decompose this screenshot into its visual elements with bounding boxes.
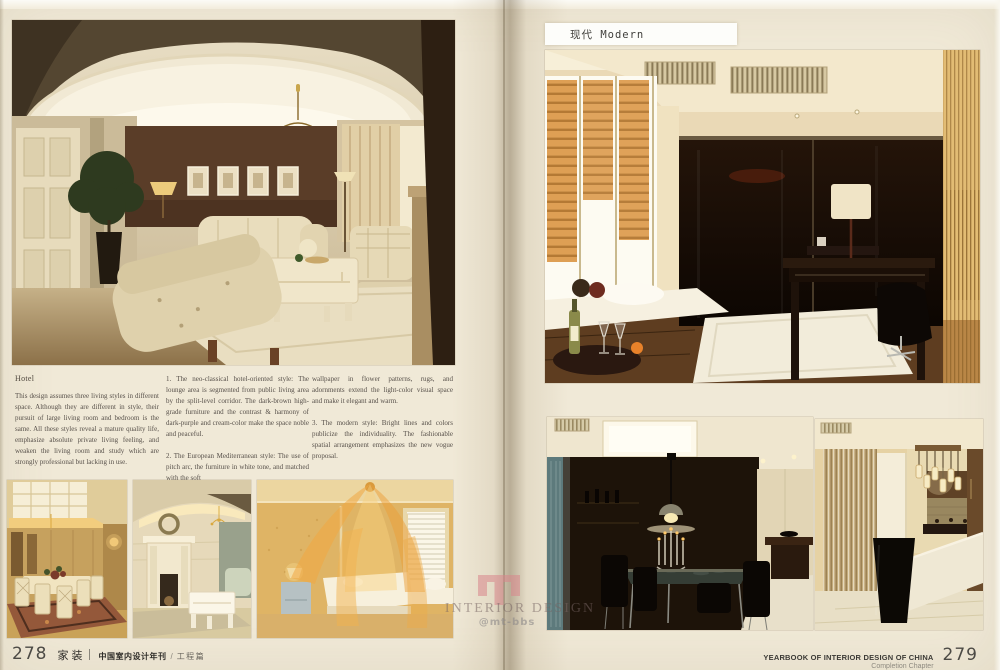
- kitchen-photo: [815, 419, 983, 630]
- section-label-text: 现代 Modern: [570, 27, 644, 42]
- article-heading: Hotel: [15, 374, 159, 383]
- right-page-number: 279: [943, 645, 978, 665]
- fireplace-room-photo: [133, 480, 251, 638]
- article-intro: This design assumes three living styles …: [15, 391, 159, 468]
- page-left-edge: [0, 0, 4, 670]
- footer-brand: 家装: [57, 647, 85, 663]
- article-style3: 3. The modern style: Bright lines and co…: [312, 418, 453, 462]
- dark-dining-photo: [547, 417, 813, 630]
- article-column-1: Hotel This design assumes three living s…: [15, 374, 159, 468]
- section-label: 现代 Modern: [545, 23, 737, 45]
- article-style1: 1. The neo-classical hotel-oriented styl…: [166, 374, 309, 440]
- footer-journal-title: 中国室内设计年刊: [98, 651, 166, 662]
- yearbook-subtitle: Completion Chapter: [763, 663, 933, 670]
- article-column-2: 1. The neo-classical hotel-oriented styl…: [166, 374, 309, 484]
- gutter-crease: [503, 0, 505, 670]
- yearbook-title-block: YEARBOOK OF INTERIOR DESIGN OF CHINA Com…: [763, 653, 933, 670]
- watermark-handle: @mt-bbs: [427, 617, 587, 628]
- living-room-photo: [12, 20, 455, 365]
- footer-section: 工程篇: [177, 651, 206, 662]
- dining-room-photo: [7, 480, 127, 638]
- yearbook-title: YEARBOOK OF INTERIOR DESIGN OF CHINA: [763, 653, 933, 662]
- book-spread: Hotel This design assumes three living s…: [0, 0, 1000, 670]
- watermark-title: INTERIOR DESIGN: [420, 601, 620, 617]
- article-style2-cont: wallpaper in flower patterns, rugs, and …: [312, 374, 453, 407]
- footer-divider: [89, 649, 90, 660]
- right-page-footer: YEARBOOK OF INTERIOR DESIGN OF CHINA Com…: [763, 645, 978, 670]
- left-page-footer: 278 家装 中国室内设计年刊 / 工程篇: [12, 644, 205, 664]
- footer-separator: /: [170, 652, 172, 661]
- page-right-edge: [994, 0, 1000, 670]
- modern-study-photo: [545, 50, 980, 383]
- left-page-number: 278: [12, 644, 47, 664]
- article-column-3: wallpaper in flower patterns, rugs, and …: [312, 374, 453, 462]
